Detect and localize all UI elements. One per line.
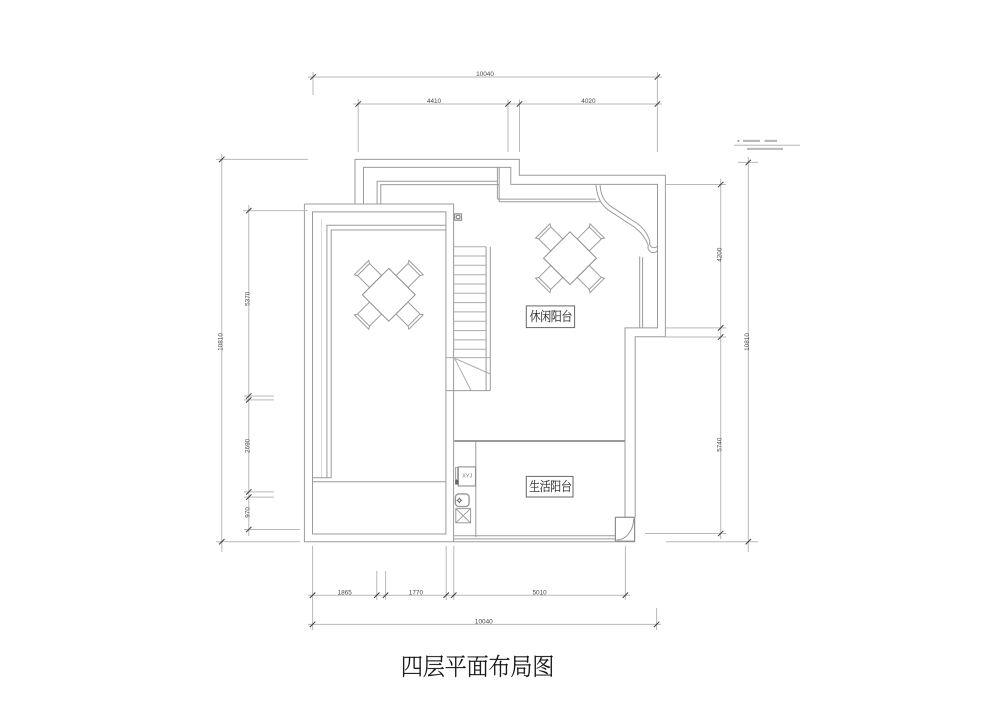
svg-text:5370: 5370 bbox=[245, 291, 252, 306]
svg-text:4200: 4200 bbox=[717, 247, 724, 262]
svg-text:4020: 4020 bbox=[581, 98, 596, 105]
svg-text:5010: 5010 bbox=[532, 589, 547, 596]
svg-text:10040: 10040 bbox=[476, 71, 494, 78]
svg-text:1770: 1770 bbox=[409, 589, 424, 596]
svg-text:10040: 10040 bbox=[475, 619, 493, 626]
svg-text:5740: 5740 bbox=[717, 437, 724, 452]
svg-text:10810: 10810 bbox=[218, 333, 225, 351]
svg-text:1865: 1865 bbox=[338, 589, 353, 596]
svg-text:XYJ: XYJ bbox=[462, 473, 472, 479]
svg-text:970: 970 bbox=[245, 507, 252, 518]
svg-text:4410: 4410 bbox=[427, 98, 442, 105]
svg-text:2690: 2690 bbox=[245, 438, 252, 453]
svg-text:10810: 10810 bbox=[744, 333, 751, 351]
